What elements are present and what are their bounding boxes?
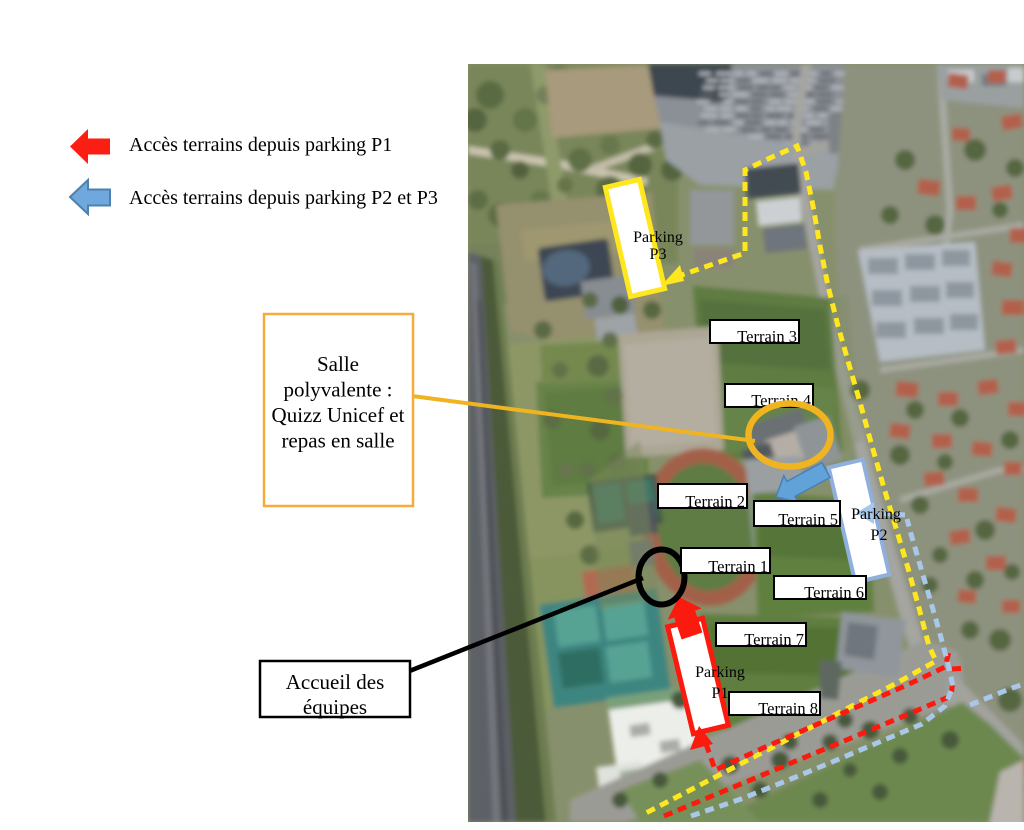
svg-text:Parking: Parking	[633, 229, 683, 246]
svg-text:Terrain 5: Terrain 5	[778, 510, 838, 529]
svg-text:P1: P1	[712, 685, 729, 702]
svg-text:polyvalente :: polyvalente :	[283, 378, 392, 402]
svg-text:Terrain 3: Terrain 3	[737, 327, 797, 346]
svg-text:Terrain 7: Terrain 7	[744, 630, 804, 649]
svg-text:Parking: Parking	[695, 664, 745, 681]
svg-text:équipes: équipes	[303, 695, 367, 719]
svg-text:Terrain 2: Terrain 2	[685, 492, 745, 511]
svg-text:Parking: Parking	[851, 506, 901, 523]
svg-text:repas en salle: repas en salle	[281, 429, 394, 453]
svg-text:Accès terrains depuis parking: Accès terrains depuis parking P1	[129, 134, 392, 156]
svg-text:P3: P3	[650, 246, 667, 263]
svg-text:Terrain 6: Terrain 6	[804, 583, 864, 602]
svg-text:Accueil des: Accueil des	[286, 670, 385, 694]
svg-text:Accès terrains depuis parking: Accès terrains depuis parking P2 et P3	[129, 187, 438, 209]
svg-text:Terrain 8: Terrain 8	[758, 699, 818, 718]
svg-text:P2: P2	[871, 527, 888, 544]
svg-text:Salle: Salle	[317, 352, 359, 376]
svg-text:Quizz Unicef et: Quizz Unicef et	[272, 403, 405, 427]
svg-text:Terrain 1: Terrain 1	[708, 557, 768, 576]
